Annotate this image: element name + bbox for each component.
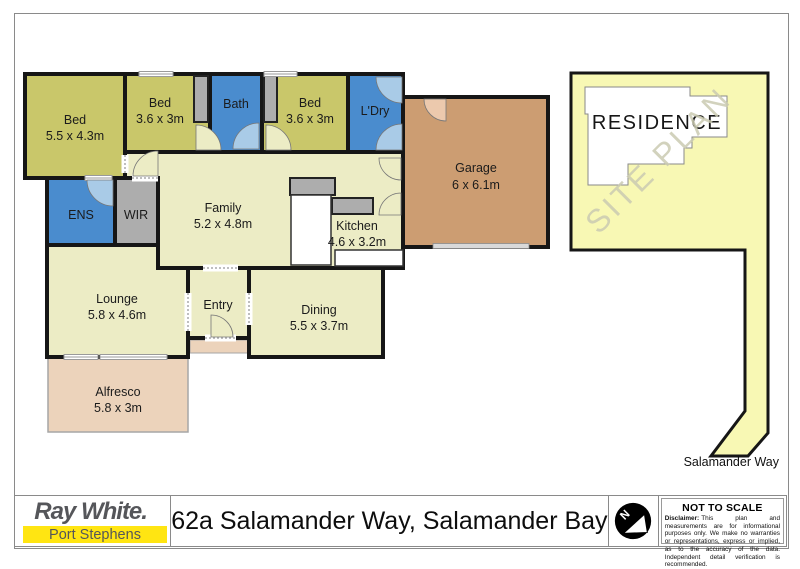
- footer-bar: Ray White. Port Stephens 62a Salamander …: [14, 495, 787, 547]
- address-cell: 62a Salamander Way, Salamander Bay: [171, 496, 608, 546]
- floor-plan-drawing: Bed 5.5 x 4.3m Bed 3.6 x 3m Bath Bed 3.6…: [0, 0, 800, 566]
- dims-garage: 6 x 6.1m: [452, 178, 500, 192]
- dims-kitchen: 4.6 x 3.2m: [328, 235, 386, 249]
- kitchen-bench-bottom: [335, 250, 403, 266]
- label-family: Family: [205, 201, 243, 215]
- dims-dining: 5.5 x 3.7m: [290, 319, 348, 333]
- label-lounge: Lounge: [96, 292, 138, 306]
- ray-white-logo: Ray White.: [15, 498, 166, 526]
- label-laundry: L'Dry: [361, 104, 391, 118]
- dims-bed3: 3.6 x 3m: [286, 112, 334, 126]
- property-address: 62a Salamander Way, Salamander Bay: [171, 507, 607, 536]
- label-entry: Entry: [203, 298, 233, 312]
- disclaimer-text: Disclaimer:This plan and measurements ar…: [662, 514, 783, 569]
- kitchen-bench-left: [291, 195, 331, 265]
- office-name-band: Port Stephens: [23, 526, 167, 543]
- robe-bed3: [264, 76, 277, 122]
- kitchen-cabinet-mid: [332, 198, 373, 214]
- disclaimer-label: Disclaimer:: [665, 515, 699, 522]
- agency-logo-cell: Ray White. Port Stephens: [15, 496, 171, 546]
- office-name: Port Stephens: [49, 527, 141, 543]
- compass-cell: N: [609, 496, 659, 546]
- garage-door: [433, 244, 529, 249]
- disclaimer-cell: NOT TO SCALE Disclaimer:This plan and me…: [659, 496, 786, 546]
- porch-area: [190, 340, 248, 353]
- label-alfresco: Alfresco: [95, 385, 140, 399]
- disclaimer-box: NOT TO SCALE Disclaimer:This plan and me…: [661, 498, 784, 544]
- label-ensuite: ENS: [68, 208, 94, 222]
- label-kitchen: Kitchen: [336, 219, 378, 233]
- north-arrow-icon: N: [612, 500, 654, 542]
- label-wir: WIR: [124, 208, 148, 222]
- label-bed3: Bed: [299, 96, 321, 110]
- label-bed2: Bed: [149, 96, 171, 110]
- dims-bed1: 5.5 x 4.3m: [46, 129, 104, 143]
- kitchen-cabinet-top: [290, 178, 335, 195]
- dims-lounge: 5.8 x 4.6m: [88, 308, 146, 322]
- not-to-scale-note: NOT TO SCALE: [662, 502, 783, 514]
- dims-alfresco: 5.8 x 3m: [94, 401, 142, 415]
- street-name-label: Salamander Way: [684, 455, 780, 469]
- label-bath: Bath: [223, 97, 249, 111]
- label-dining: Dining: [301, 303, 336, 317]
- dims-bed2: 3.6 x 3m: [136, 112, 184, 126]
- label-bed1: Bed: [64, 113, 86, 127]
- dims-family: 5.2 x 4.8m: [194, 217, 252, 231]
- label-garage: Garage: [455, 161, 497, 175]
- robe-bed2: [194, 76, 208, 122]
